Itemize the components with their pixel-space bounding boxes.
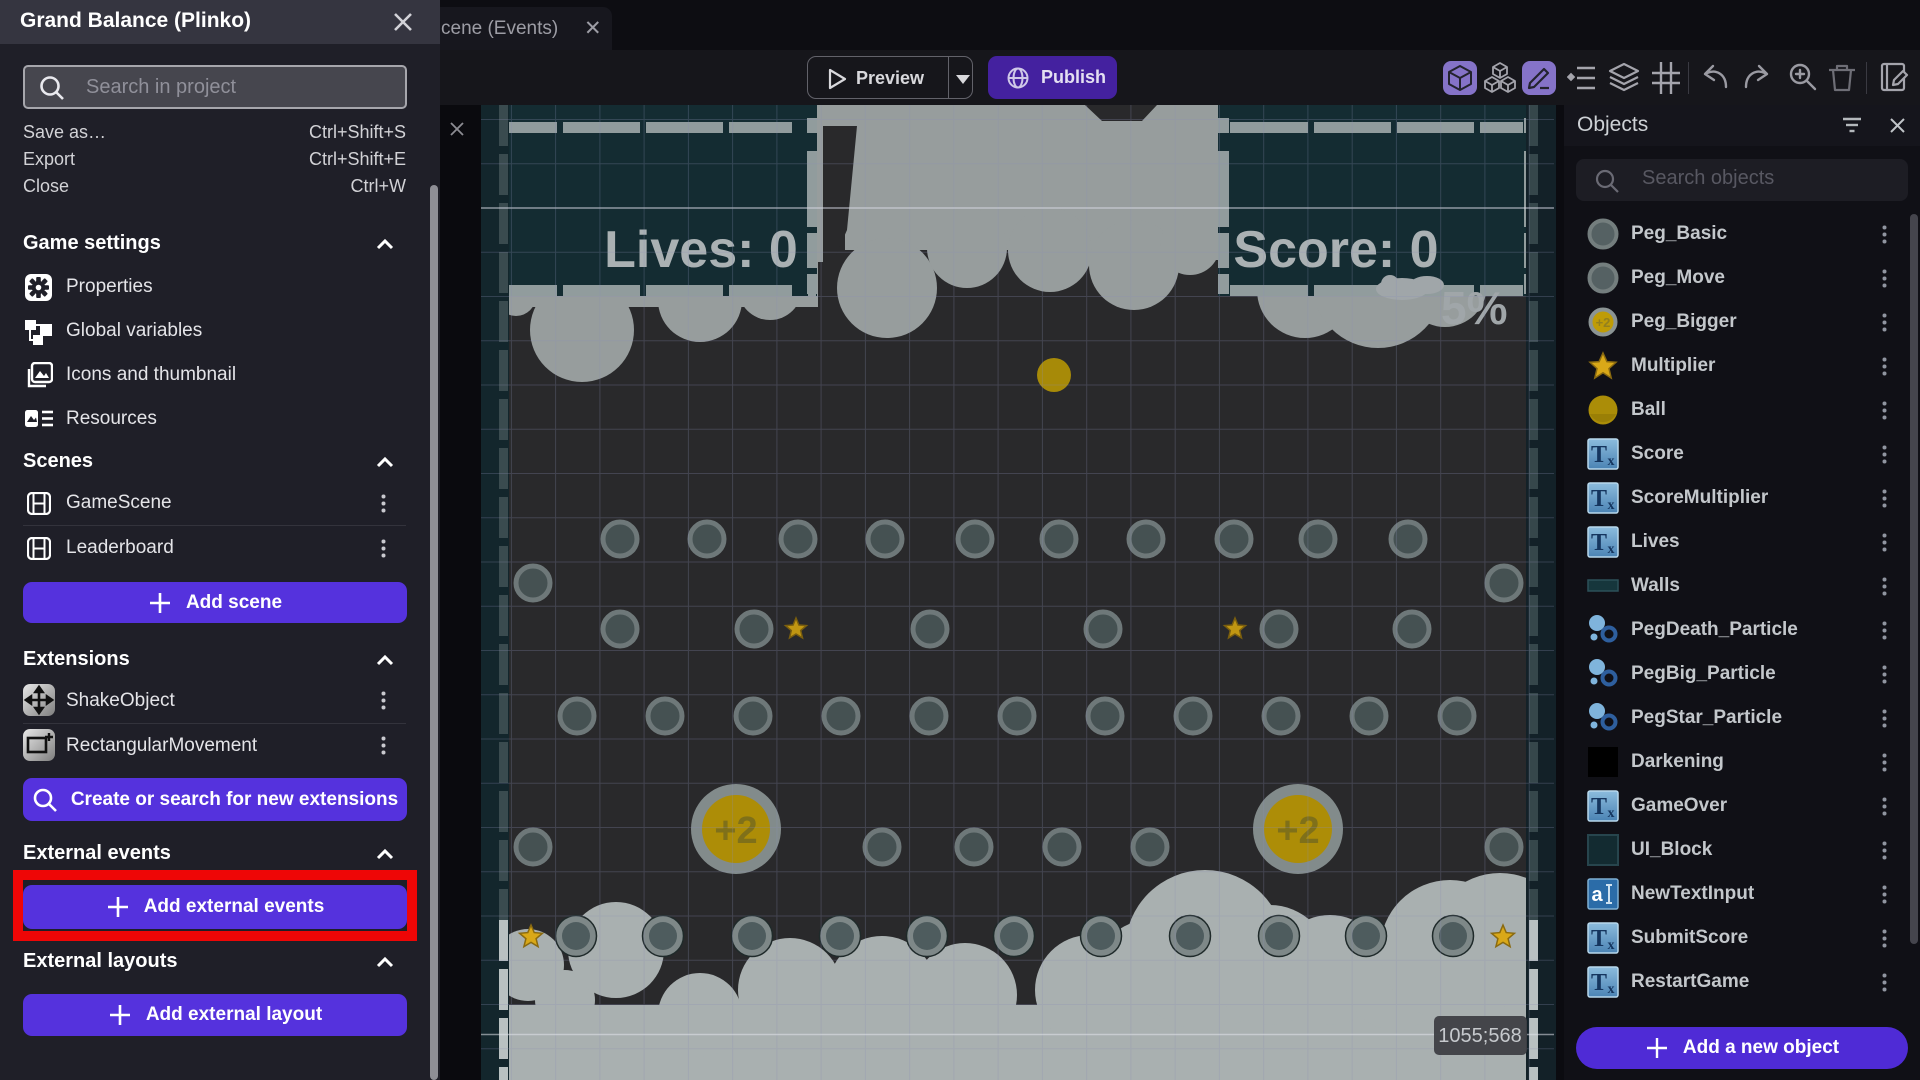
svg-text:+2: +2 [714, 810, 757, 852]
svg-text:+2: +2 [1596, 315, 1611, 330]
svg-text:Lives: 0: Lives: 0 [604, 221, 798, 279]
svg-text:x: x [1608, 454, 1615, 469]
svg-text:T: T [1591, 794, 1607, 820]
svg-text:T: T [1591, 970, 1607, 996]
svg-text:+2: +2 [1276, 810, 1319, 852]
svg-text:T: T [1591, 486, 1607, 512]
svg-text:x: x [1608, 938, 1615, 953]
svg-text:x: x [1608, 498, 1615, 513]
svg-text:T: T [1591, 530, 1607, 556]
svg-text:a: a [1591, 884, 1603, 906]
svg-text:5%: 5% [1441, 282, 1507, 334]
svg-text:1055;568: 1055;568 [1438, 1025, 1521, 1047]
svg-text:x: x [1608, 982, 1615, 997]
svg-text:T: T [1591, 926, 1607, 952]
svg-text:T: T [1591, 442, 1607, 468]
svg-text:x: x [1608, 806, 1615, 821]
svg-text:x: x [1608, 542, 1615, 557]
